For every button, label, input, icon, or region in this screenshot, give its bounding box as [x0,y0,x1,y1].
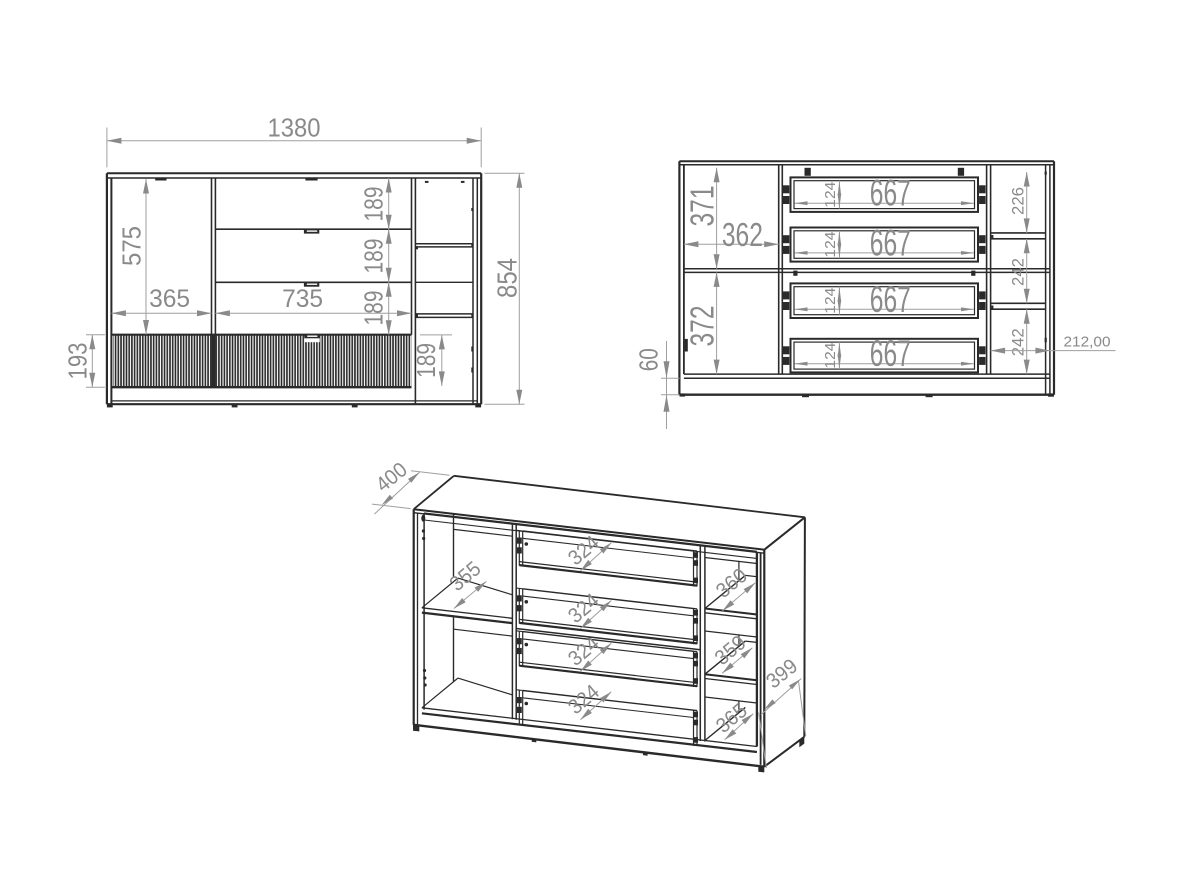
svg-text:371: 371 [684,186,721,227]
svg-text:124: 124 [822,343,839,369]
svg-text:226: 226 [1008,187,1027,215]
svg-text:667: 667 [870,333,911,374]
svg-text:193: 193 [62,343,92,380]
svg-text:189: 189 [411,343,441,378]
svg-text:124: 124 [822,288,839,314]
svg-text:1380: 1380 [268,112,321,142]
svg-text:735: 735 [282,285,323,313]
svg-text:667: 667 [870,222,911,263]
svg-text:575: 575 [116,226,146,266]
svg-text:667: 667 [870,279,911,320]
svg-text:372: 372 [684,306,721,347]
svg-text:242: 242 [1008,258,1027,286]
svg-text:189: 189 [359,187,389,222]
svg-text:365: 365 [149,285,190,313]
svg-text:212,00: 212,00 [1064,334,1111,351]
svg-text:124: 124 [822,232,839,258]
svg-text:124: 124 [822,182,839,208]
svg-text:854: 854 [492,258,523,298]
svg-text:189: 189 [359,291,389,326]
svg-text:667: 667 [870,173,911,214]
svg-text:242: 242 [1008,328,1027,356]
svg-text:60: 60 [634,348,664,371]
svg-text:189: 189 [359,239,389,274]
svg-text:362: 362 [722,216,763,253]
